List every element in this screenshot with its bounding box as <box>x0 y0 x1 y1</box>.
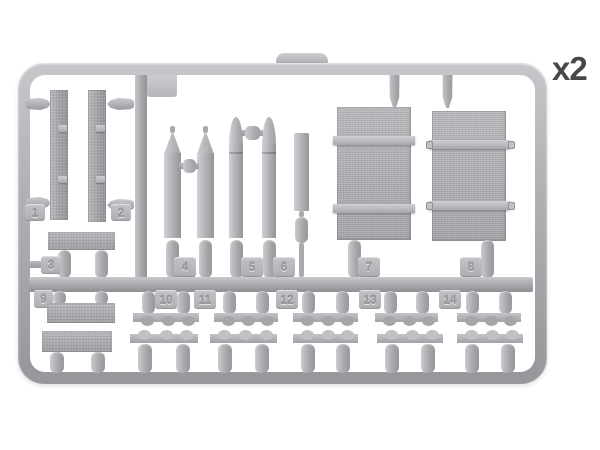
plank-part-1 <box>50 90 68 220</box>
strip-bump <box>486 330 499 340</box>
sprue-gate <box>336 291 349 314</box>
strip-bump <box>422 316 435 326</box>
part-number-tag-8: 8 <box>460 257 482 277</box>
strip-bump <box>260 330 273 340</box>
strip-bump <box>385 330 398 340</box>
part-number-tag-11: 11 <box>194 290 216 309</box>
sprue-gate <box>499 291 512 314</box>
strip-bump <box>141 316 154 326</box>
vertical-runner <box>135 75 147 277</box>
strip-bump <box>506 330 519 340</box>
wood-plank <box>47 303 115 323</box>
sprue-gate <box>256 291 269 314</box>
wood-plank <box>42 331 112 352</box>
wavy-strip <box>457 313 521 322</box>
part-number-tag-12: 12 <box>276 290 298 309</box>
runner-tab <box>147 75 177 97</box>
part-number-text: 13 <box>363 293 376 307</box>
plank-part-3 <box>48 232 115 250</box>
part-number-text: 1 <box>32 206 39 220</box>
sprue-gate <box>295 217 308 243</box>
sprue-gate <box>91 352 105 373</box>
part-number-text: 5 <box>249 260 256 274</box>
shell-link-collar <box>183 159 196 173</box>
part-number-tag-7: 7 <box>358 257 380 277</box>
strip-bump <box>322 316 335 326</box>
panel-part-8 <box>432 111 506 241</box>
part-number-tag-13: 13 <box>359 290 381 309</box>
sprue-gate <box>416 291 429 314</box>
batten-latch <box>508 141 515 149</box>
batten-latch <box>426 141 433 149</box>
sprue-gate <box>384 291 397 314</box>
strip-bump <box>138 330 151 340</box>
part-number-tag-1: 1 <box>25 204 45 221</box>
sprue-gate <box>218 344 232 373</box>
strip-bump <box>383 316 396 326</box>
strip-bump <box>301 330 314 340</box>
strip-bump <box>406 330 419 340</box>
shell-part-5 <box>229 145 243 238</box>
shell-part-4 <box>197 153 214 238</box>
part-number-text: 6 <box>281 260 288 274</box>
wavy-strip <box>293 334 358 343</box>
strip-bump <box>239 330 252 340</box>
part-number-text: 9 <box>40 292 47 306</box>
part-number-text: 4 <box>182 260 189 274</box>
plank-cleat <box>96 125 105 132</box>
part-number-tag-14: 14 <box>439 290 461 309</box>
sprue-gate <box>199 240 212 278</box>
panel-batten <box>333 136 415 145</box>
strip-bump <box>162 316 175 326</box>
wavy-strip <box>375 313 438 322</box>
shell-case-band <box>229 152 243 154</box>
wavy-strip <box>214 313 278 322</box>
panel-batten <box>333 204 415 213</box>
strip-bump <box>301 316 314 326</box>
sprue-gate <box>255 344 269 373</box>
strip-bump <box>403 316 416 326</box>
batten-latch <box>508 202 515 210</box>
strip-bump <box>222 316 235 326</box>
plank-cleat <box>58 176 67 183</box>
panel-part-7 <box>337 107 411 240</box>
strip-bump <box>426 330 439 340</box>
strip-bump <box>180 330 193 340</box>
sprue-gate <box>301 344 315 373</box>
plank-cleat <box>96 176 105 183</box>
strip-bump <box>341 330 354 340</box>
shell-link-collar <box>245 126 260 140</box>
sprue-gate <box>138 344 152 373</box>
sprue-gate <box>142 291 155 314</box>
part-number-tag-4: 4 <box>174 257 196 277</box>
sprue-gate <box>481 240 494 278</box>
shell-part-5 <box>262 145 276 238</box>
plank-cleat <box>58 125 67 132</box>
wavy-strip <box>210 334 277 343</box>
sprue-gate <box>177 291 190 314</box>
sprue-gate <box>501 344 515 373</box>
part-number-tag-2: 2 <box>111 204 131 221</box>
part-number-text: 11 <box>199 293 212 307</box>
part-number-text: 10 <box>159 293 172 307</box>
sprue-gate <box>50 352 64 373</box>
strip-bump <box>465 330 478 340</box>
part-number-text: 8 <box>468 260 475 274</box>
wavy-strip <box>293 313 358 322</box>
wavy-strip <box>457 334 523 343</box>
sprue-gate <box>421 344 435 373</box>
sprue-gate <box>302 291 315 314</box>
wavy-strip <box>130 334 198 343</box>
part-number-text: 14 <box>443 293 456 307</box>
wavy-strip <box>133 313 199 322</box>
panel-batten <box>429 140 510 149</box>
cylinder-part-6 <box>294 133 309 211</box>
sprue-product-photo: 1 2 3 4 5 6 7 8 9 10 <box>0 0 600 450</box>
strip-bump <box>218 330 231 340</box>
part-number-tag-3: 3 <box>41 256 61 274</box>
part-number-tag-6: 6 <box>273 257 295 277</box>
quantity-label: x2 <box>552 50 587 88</box>
part-number-text: 7 <box>366 260 373 274</box>
part-number-text: 2 <box>118 206 125 220</box>
part-number-tag-10: 10 <box>155 290 177 309</box>
shell-case-band <box>262 152 276 154</box>
gate-stem <box>299 243 304 277</box>
sprue-gate <box>223 291 236 314</box>
sprue-gate <box>176 344 190 373</box>
sprue-gate <box>465 344 479 373</box>
part-number-text: 12 <box>280 293 293 307</box>
sprue-gate <box>385 344 399 373</box>
part-number-text: 3 <box>48 258 55 272</box>
strip-bump <box>465 316 478 326</box>
batten-latch <box>426 202 433 210</box>
part-number-tag-5: 5 <box>241 257 263 277</box>
sprue-gate <box>466 291 479 314</box>
panel-batten <box>429 201 510 210</box>
wavy-strip <box>377 334 443 343</box>
sprue-gate <box>336 344 350 373</box>
sprue-gate <box>95 250 108 278</box>
strip-bump <box>322 330 335 340</box>
strip-bump <box>341 316 354 326</box>
strip-bump <box>182 316 195 326</box>
plank-part-2 <box>88 90 106 222</box>
strip-bump <box>160 330 173 340</box>
